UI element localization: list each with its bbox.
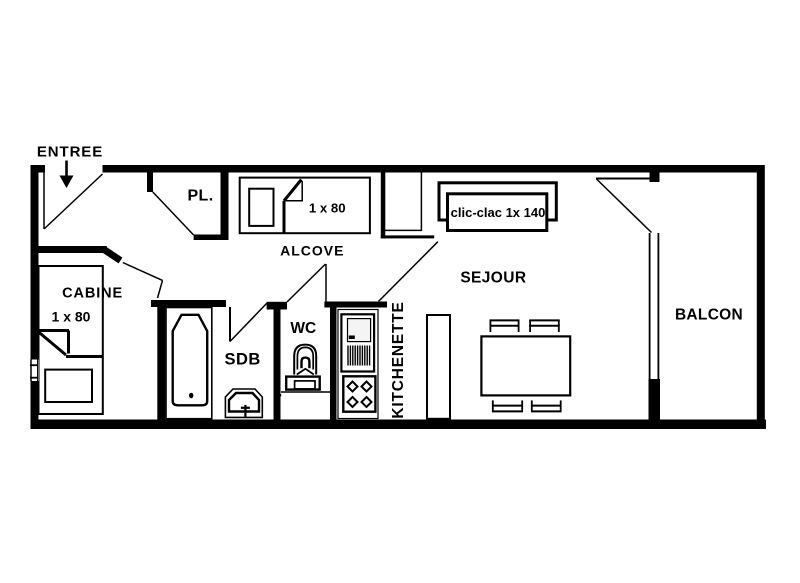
svg-text:KITCHENETTE: KITCHENETTE [390, 301, 407, 418]
svg-text:ALCOVE: ALCOVE [280, 243, 344, 259]
svg-text:BALCON: BALCON [675, 307, 743, 324]
svg-text:WC: WC [290, 320, 316, 337]
svg-text:PL.: PL. [187, 188, 213, 205]
svg-text:1 x 80: 1 x 80 [52, 309, 91, 325]
svg-text:CABINE: CABINE [62, 285, 123, 301]
svg-text:SDB: SDB [225, 351, 261, 369]
svg-text:SEJOUR: SEJOUR [460, 270, 526, 287]
svg-text:1 x 80: 1 x 80 [309, 201, 346, 216]
svg-text:ENTREE: ENTREE [37, 144, 103, 161]
svg-text:clic-clac 1x 140: clic-clac 1x 140 [451, 205, 546, 220]
